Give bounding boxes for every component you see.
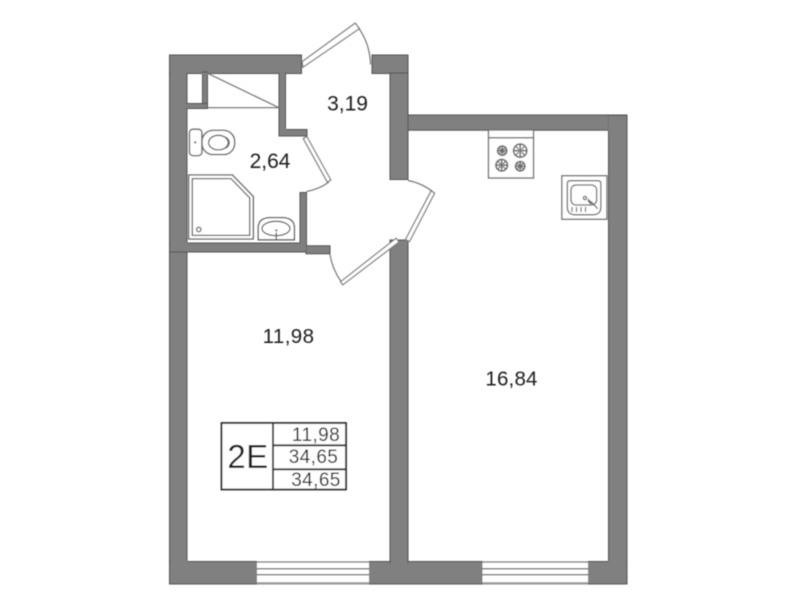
svg-text:11,98: 11,98 (292, 425, 340, 446)
svg-text:11,98: 11,98 (263, 325, 315, 348)
svg-text:3,19: 3,19 (327, 93, 368, 116)
svg-text:16,84: 16,84 (485, 368, 537, 391)
svg-text:2,64: 2,64 (250, 150, 291, 173)
svg-text:2Е: 2Е (227, 438, 268, 475)
svg-text:34,65: 34,65 (289, 447, 339, 468)
svg-text:34,65: 34,65 (291, 470, 341, 491)
